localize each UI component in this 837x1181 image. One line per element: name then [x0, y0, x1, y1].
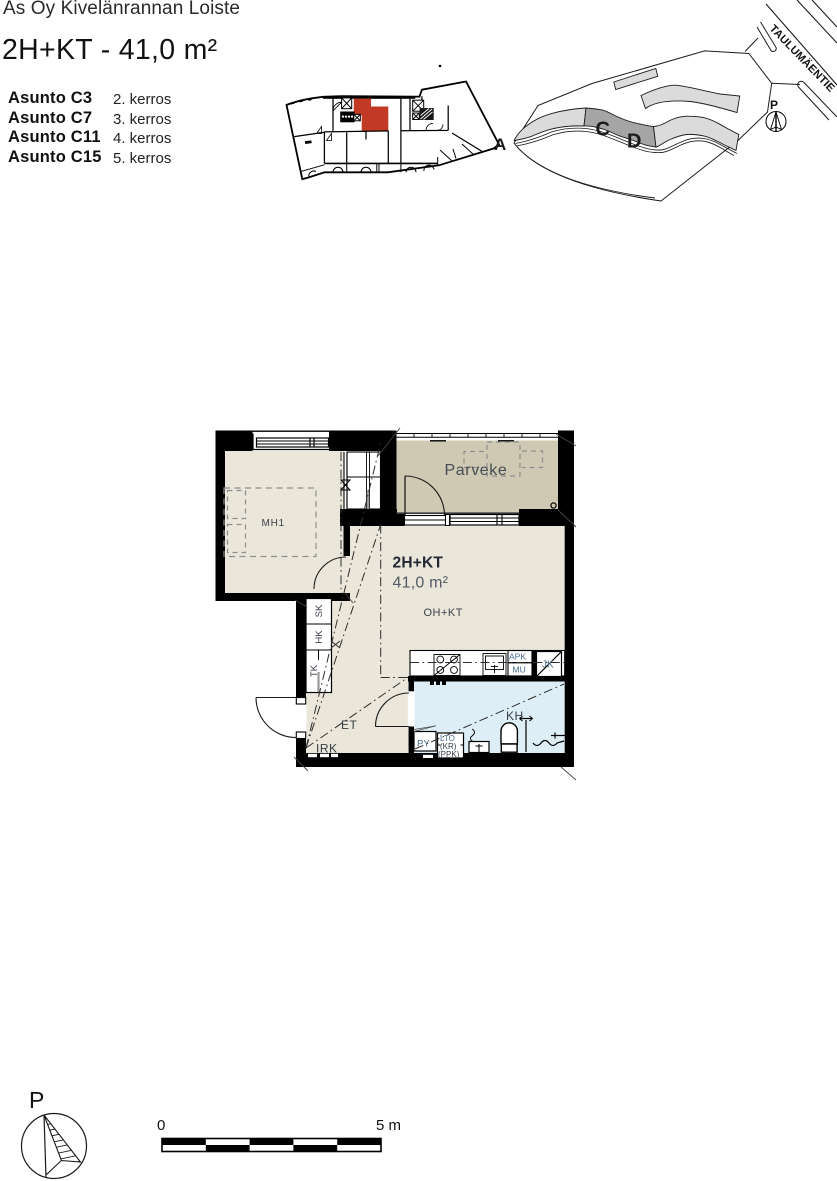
svg-text:KH: KH — [506, 709, 524, 723]
svg-text:TK: TK — [309, 664, 320, 677]
svg-text:MU: MU — [513, 665, 526, 675]
svg-text:D: D — [627, 131, 641, 153]
svg-text:SK: SK — [314, 604, 325, 617]
svg-text:PY: PY — [417, 739, 430, 750]
svg-text:APK: APK — [509, 652, 526, 662]
svg-text:2H+KT: 2H+KT — [393, 555, 444, 572]
svg-text:P: P — [770, 98, 778, 112]
svg-text:0: 0 — [157, 1117, 165, 1134]
svg-text:5 m: 5 m — [376, 1117, 401, 1134]
svg-text:C: C — [596, 119, 610, 141]
svg-text:41,0 m²: 41,0 m² — [393, 575, 449, 592]
svg-text:OH+KT: OH+KT — [424, 607, 463, 619]
svg-text:(PPK): (PPK) — [438, 750, 460, 759]
svg-text:P: P — [29, 1087, 44, 1113]
svg-text:JK: JK — [542, 660, 554, 671]
svg-text:ET: ET — [341, 718, 358, 732]
svg-text:Parveke: Parveke — [445, 462, 508, 479]
svg-text:A: A — [494, 135, 506, 154]
svg-text:HK: HK — [314, 630, 325, 644]
svg-text:MH1: MH1 — [262, 518, 286, 529]
svg-text:IRK: IRK — [316, 742, 338, 756]
